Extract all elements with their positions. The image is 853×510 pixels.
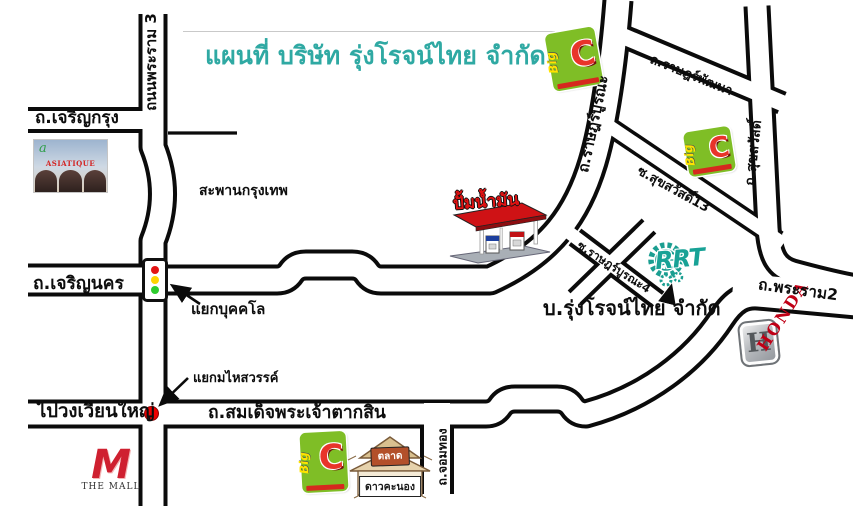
road-label-chom-thong: ถ.จอมทอง	[435, 428, 448, 485]
the-mall-logo-letter: M	[80, 448, 142, 482]
company-logo: RRT	[642, 236, 712, 290]
gas-station-landmark: ปั้มน้ำมัน	[448, 188, 554, 268]
the-mall-landmark: M THE MALL	[80, 448, 142, 504]
traffic-light-red	[151, 266, 159, 274]
honda-landmark: H HONDA	[737, 314, 817, 400]
bigc-letter: C	[318, 437, 345, 478]
market-label-line2: ดาวคะนอง	[359, 476, 421, 497]
page-title: แผนที่ บริษัท รุ่งโรจน์ไทย จำกัด	[205, 36, 546, 76]
company-logo-text: RRT	[654, 243, 706, 275]
road-label-rama3: ถนนพระราม 3	[144, 13, 160, 111]
label-maihasawan-junction: แยกมไหสวรรค์	[193, 372, 278, 386]
label-krungthep-bridge: สะพานกรุงเทพ	[199, 184, 288, 199]
market-label-line1: ตลาด	[370, 446, 409, 466]
road-label-charoen-krung: ถ.เจริญกรุง	[35, 110, 119, 128]
road-network	[0, 0, 853, 510]
bigc-strip	[306, 484, 345, 491]
road-label-charoen-nakhon: ถ.เจริญนคร	[33, 275, 124, 293]
asiatique-roofs-icon	[34, 170, 107, 192]
bigc-small-text: Big	[296, 452, 311, 475]
label-to-wongwian-yai: ไปวงเวียนใหญ่	[37, 402, 155, 421]
bigc-letter: C	[567, 32, 599, 76]
label-bukkhalo-junction: แยกบุคคโล	[191, 302, 265, 318]
asiatique-wordmark: ASIATIQUE	[34, 159, 107, 168]
map-canvas: แผนที่ บริษัท รุ่งโรจน์ไทย จำกัด ถนนพระร…	[0, 0, 853, 510]
bigc-logo-bottom: Big C	[299, 431, 348, 493]
company-name-label: บ.รุ่งโรจน์ไทย จำกัด	[543, 298, 721, 319]
bigc-small-text: Big	[543, 51, 561, 75]
traffic-light-icon	[142, 258, 168, 302]
gas-station-label: ปั้มน้ำมัน	[452, 186, 520, 218]
bigc-logo-right: Big C	[683, 126, 736, 178]
asiatique-script-icon: a	[39, 141, 47, 156]
traffic-light-green	[151, 286, 159, 294]
road-label-taksin: ถ.สมเด็จพระเจ้าตากสิน	[208, 404, 386, 422]
daokanong-market-landmark: ตลาด ดาวคะนอง	[344, 436, 436, 504]
traffic-light-yellow	[151, 276, 159, 284]
the-mall-wordmark: THE MALL	[80, 482, 142, 492]
bigc-letter: C	[706, 129, 731, 165]
bigc-small-text: Big	[681, 143, 698, 167]
asiatique-landmark: a ASIATIQUE	[33, 139, 108, 193]
